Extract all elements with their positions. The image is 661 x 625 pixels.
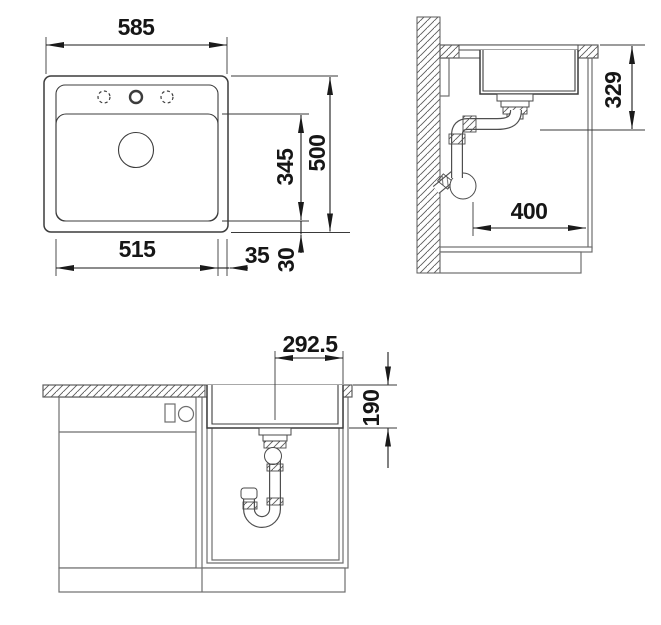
technical-drawing-canvas: 585 500 345 30 515 bbox=[0, 0, 661, 625]
sink-outer-edge bbox=[44, 76, 228, 232]
dim-side-ledge: 35 bbox=[218, 242, 270, 268]
countertop-hatch-left bbox=[440, 45, 459, 58]
dim-label-292-5: 292.5 bbox=[282, 331, 338, 357]
drain-assembly-front bbox=[259, 428, 291, 448]
pipe-union-nut bbox=[463, 116, 476, 132]
sink-rim-flange bbox=[459, 45, 578, 50]
cabinet-bottom bbox=[440, 247, 592, 252]
trap-elbow bbox=[265, 448, 282, 465]
trap-inlet-cap bbox=[241, 488, 257, 499]
dim-label-500: 500 bbox=[304, 135, 330, 172]
dishwasher-control-rect bbox=[165, 404, 175, 422]
countertop-hatch-left bbox=[43, 385, 205, 397]
dim-label-400: 400 bbox=[511, 198, 548, 224]
wall-section bbox=[417, 17, 440, 273]
dim-label-515: 515 bbox=[119, 236, 157, 262]
dim-label-190: 190 bbox=[358, 390, 384, 427]
drain-pipe-side bbox=[436, 110, 516, 199]
dim-label-35: 35 bbox=[245, 242, 270, 268]
front-view: 292.5 190 bbox=[43, 331, 397, 592]
dim-overall-width: 585 bbox=[46, 14, 227, 74]
pipe-collar-nut bbox=[243, 502, 257, 509]
top-view: 585 500 345 30 515 bbox=[44, 14, 350, 276]
pipe-union-nut bbox=[267, 498, 283, 505]
dim-basin-width: 515 bbox=[56, 236, 227, 276]
countertop-hatch-right bbox=[578, 45, 598, 58]
sink-installation-drawing: 585 500 345 30 515 bbox=[0, 0, 661, 625]
cabinet-plinth bbox=[440, 252, 581, 273]
wall-support-rail bbox=[440, 58, 449, 96]
basin-section-outer bbox=[480, 50, 578, 94]
pipe-union-nut bbox=[267, 464, 283, 471]
cabinet-side-panel bbox=[588, 58, 592, 248]
dishwasher-cabinet bbox=[59, 397, 196, 568]
dim-clearance: 400 bbox=[473, 198, 586, 236]
dim-bowl-depth: 190 bbox=[349, 352, 397, 468]
dim-label-345: 345 bbox=[272, 148, 298, 186]
dim-label-30: 30 bbox=[273, 248, 299, 273]
dim-basin-depth: 345 bbox=[222, 114, 309, 221]
dim-label-329: 329 bbox=[600, 72, 626, 109]
dim-center-offset: 292.5 bbox=[275, 331, 343, 384]
side-view: 329 400 bbox=[417, 17, 645, 273]
dim-front-ledge: 30 bbox=[273, 221, 301, 272]
pipe-union-nut bbox=[449, 134, 465, 144]
dim-label-585: 585 bbox=[118, 14, 156, 40]
